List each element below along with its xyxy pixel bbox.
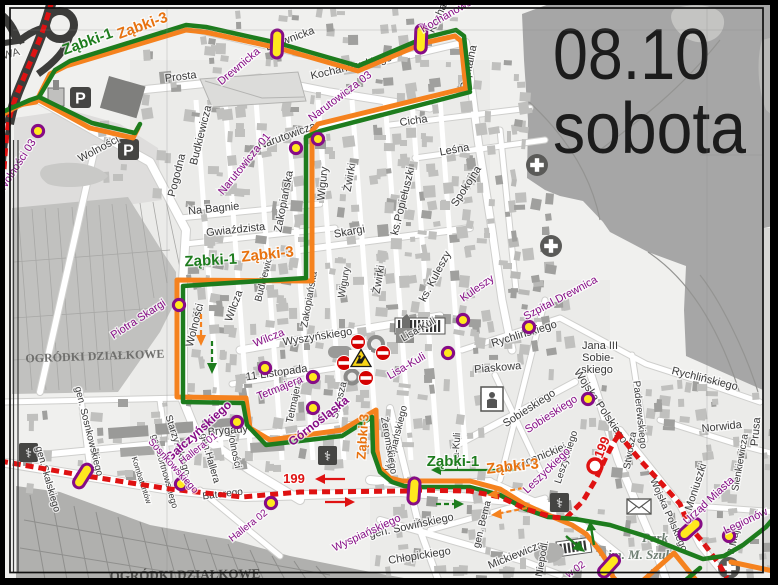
svg-text:08.10: 08.10	[553, 15, 710, 95]
svg-text:⚕: ⚕	[25, 446, 32, 461]
svg-text:P: P	[123, 143, 134, 160]
svg-text:Sobie-: Sobie-	[582, 352, 614, 364]
svg-text:Jana III: Jana III	[582, 340, 618, 352]
svg-text:199: 199	[283, 471, 305, 486]
svg-text:⚕: ⚕	[324, 449, 331, 464]
svg-text:P: P	[75, 91, 86, 108]
svg-text:Ząbki-1: Ząbki-1	[184, 251, 237, 271]
svg-text:Ząbki-1: Ząbki-1	[427, 453, 480, 470]
svg-text:⚕: ⚕	[556, 496, 563, 511]
svg-text:sobota: sobota	[553, 89, 747, 169]
svg-text:Ząbki-3: Ząbki-3	[353, 413, 371, 459]
